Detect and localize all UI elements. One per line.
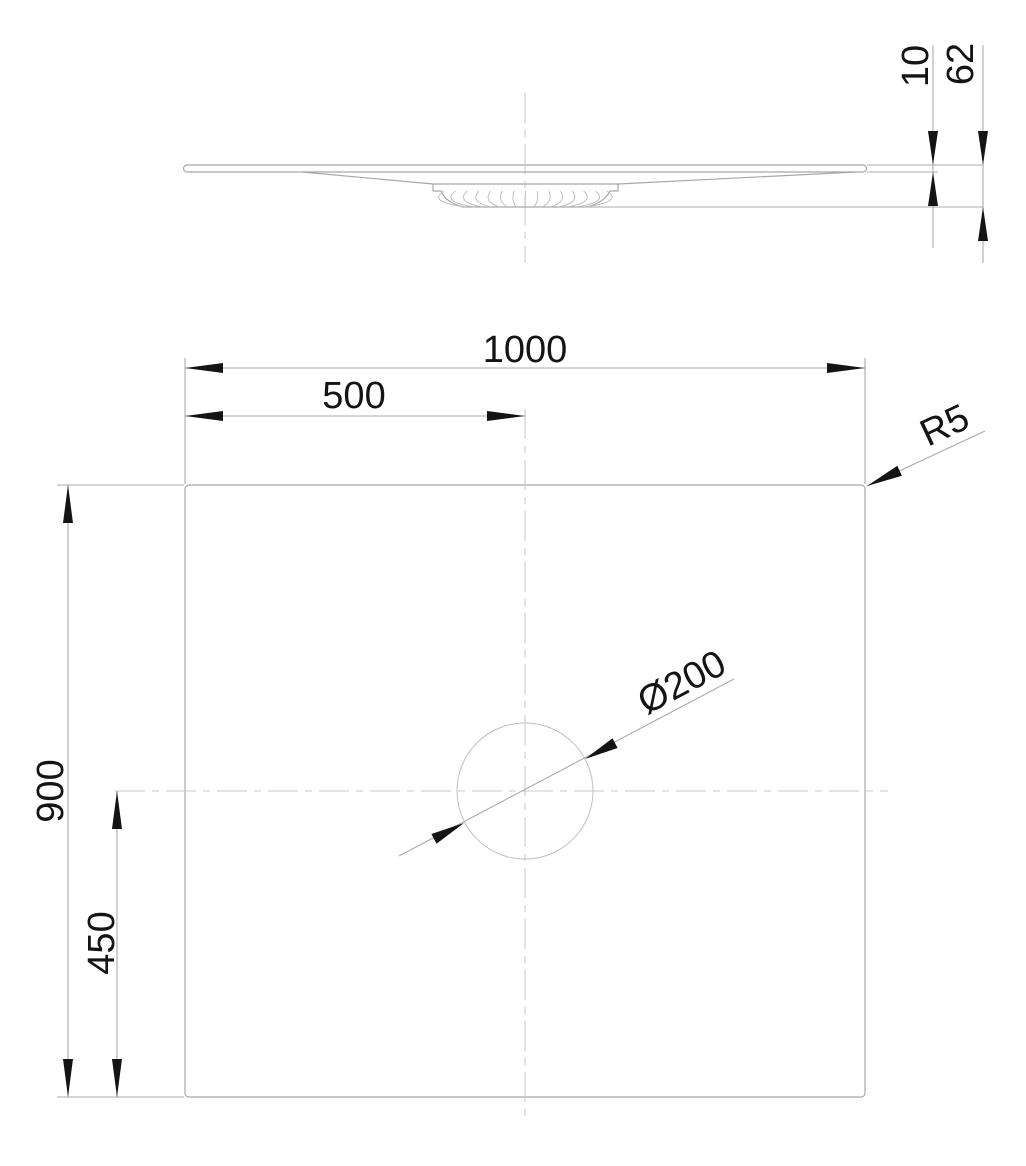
dim-label-corner-radius: R5: [914, 397, 976, 456]
shower-tray-drawing: 10 62 1000 500 900: [0, 0, 1026, 1166]
dim-label-depth-to-center: 450: [81, 911, 123, 974]
profile-view: [184, 93, 984, 263]
dim-label-drain-diameter: Ø200: [631, 642, 733, 723]
arrow-down-icon: [112, 1059, 122, 1097]
dim-label-overall-height: 62: [940, 43, 982, 85]
arrow-down-icon: [978, 131, 988, 165]
arrow-up-icon: [928, 172, 938, 206]
dim-corner-radius: R5: [867, 397, 985, 486]
technical-drawing-page: 10 62 1000 500 900: [0, 0, 1026, 1166]
arrow-toward-circle-icon: [585, 738, 618, 759]
arrow-right-icon: [827, 363, 865, 373]
dim-depth: 900: [30, 485, 184, 1097]
arrow-leader-icon: [867, 466, 902, 486]
arrow-down-icon: [63, 1059, 73, 1097]
dim-drain-diameter: Ø200: [399, 642, 734, 856]
arrow-left-icon: [185, 411, 223, 421]
dim-width-to-center: 500: [185, 375, 525, 421]
dim-rim-thickness: 10: [895, 45, 938, 248]
arrow-toward-circle-icon: [431, 823, 464, 844]
tray-floor-slope-right: [618, 172, 856, 184]
arrow-up-icon: [63, 485, 73, 523]
arrow-up-icon: [112, 791, 122, 829]
arrow-right-icon: [487, 411, 525, 421]
dim-label-width: 1000: [483, 329, 568, 371]
arrow-up-icon: [978, 207, 988, 241]
dim-depth-to-center: 450: [81, 791, 123, 1097]
dim-overall-height: 62: [940, 43, 988, 263]
plan-view: [115, 409, 888, 1122]
dim-label-depth: 900: [30, 759, 72, 822]
dim-label-rim-thickness: 10: [895, 45, 937, 87]
arrow-down-icon: [928, 131, 938, 165]
tray-floor-slope-left: [302, 172, 433, 184]
dim-label-width-to-center: 500: [322, 375, 385, 417]
drain-ribs: [439, 191, 612, 207]
arrow-left-icon: [185, 363, 223, 373]
